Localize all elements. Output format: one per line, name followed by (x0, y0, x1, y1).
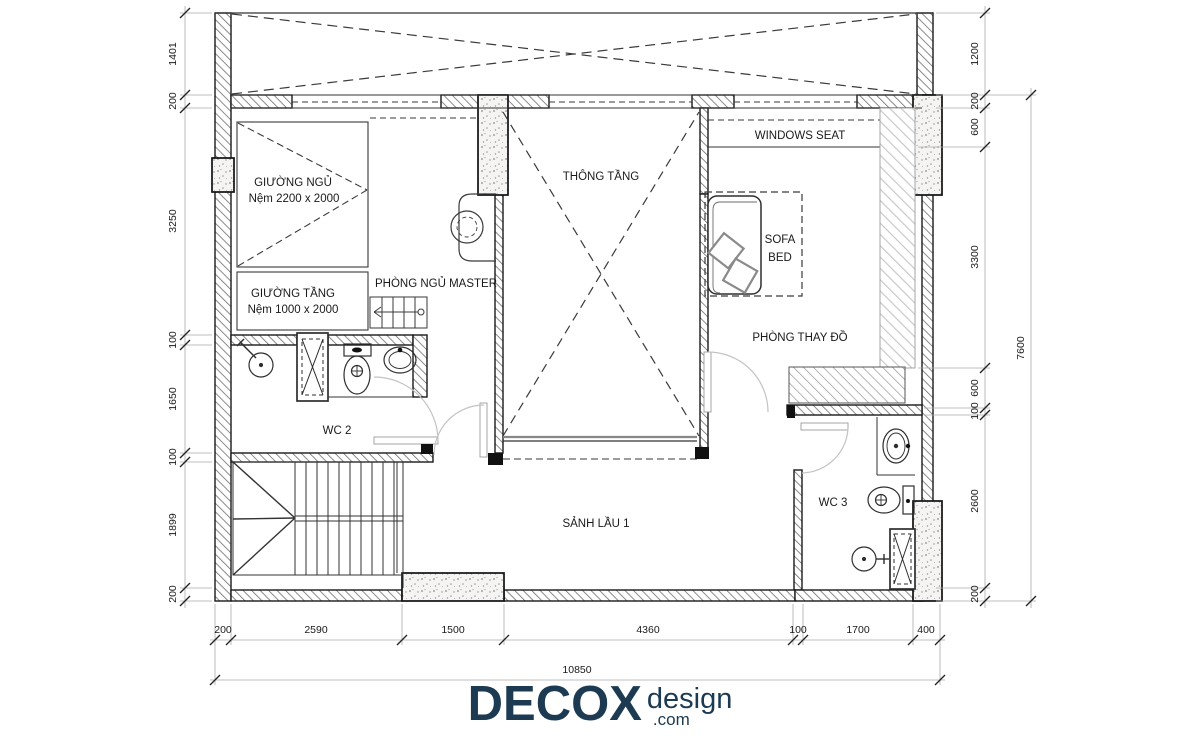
dimension-bottom: 200 2590 1500 4360 100 1700 400 10850 (210, 604, 945, 685)
master-bed-label: GIƯỜNG NGỦ (254, 176, 332, 189)
wc2-side-wall (413, 335, 427, 397)
wc2-door (374, 377, 438, 444)
dim-label: 1650 (167, 387, 179, 411)
windows-seat-label: WINDOWS SEAT (755, 130, 846, 142)
dim-label: 200 (167, 585, 179, 603)
dim-label: 3300 (969, 245, 981, 269)
dim-label: 100 (167, 448, 179, 466)
wc2-label: WC 2 (323, 425, 352, 437)
shower-stall (890, 529, 915, 589)
top-wall-segment (231, 95, 292, 108)
dressing-room-label: PHÒNG THAY ĐỒ (752, 331, 847, 344)
dim-label: 1899 (167, 513, 179, 537)
bunk-ladder (370, 297, 427, 328)
dim-label: 100 (167, 331, 179, 349)
concrete-column (212, 158, 234, 192)
dressing-bench-wall (787, 405, 922, 415)
dim-label: 200 (969, 92, 981, 110)
sofa-bed-label: BED (768, 252, 792, 264)
dim-ticks (980, 8, 1036, 606)
bunk-bed-size: Nệm 1000 x 2000 (248, 304, 339, 316)
wc2-stairs-wall (231, 453, 433, 462)
master-room-label: PHÒNG NGỦ MASTER (375, 277, 497, 290)
void-right-wall (700, 194, 708, 453)
dim-label: 400 (917, 624, 935, 636)
toilet-icon (868, 486, 914, 514)
dim-label: 200 (167, 92, 179, 110)
dim-total-label: 10850 (562, 664, 591, 676)
wc3-door (801, 423, 848, 473)
void-right-wall-upper (700, 108, 708, 194)
floor-plan-page: 1401 200 3250 100 1650 100 1899 200 1200… (0, 0, 1200, 750)
bottom-wall (504, 590, 795, 601)
chair-icon (451, 211, 483, 243)
wc3-fixtures (852, 429, 915, 589)
master-bed-size: Nệm 2200 x 2000 (249, 193, 340, 205)
wc3-left-wall (794, 470, 802, 590)
balcony-right-wall (917, 13, 933, 95)
bunk-bed (237, 272, 368, 330)
dim-label: 4360 (636, 624, 660, 636)
duct-shaft (297, 333, 328, 401)
dim-total-label: 7600 (1015, 336, 1027, 360)
wall-caps (421, 405, 795, 465)
concrete-block (402, 573, 504, 601)
sink-icon (883, 429, 910, 463)
void-label: THÔNG TẦNG (563, 170, 640, 183)
concrete-block (913, 501, 942, 601)
top-wall-segment (692, 95, 734, 108)
master-door (434, 403, 487, 457)
dimension-left: 1401 200 3250 100 1650 100 1899 200 (167, 6, 212, 608)
logo-design-text: design (647, 686, 732, 712)
bottom-wall (231, 590, 402, 601)
concrete-column (478, 95, 508, 195)
bunk-bed-label: GIƯỜNG TẦNG (251, 287, 335, 300)
logo-com-text: .com (653, 712, 690, 728)
bottom-wall (795, 590, 922, 601)
top-wall-segment (857, 95, 915, 108)
dim-label: 100 (789, 624, 807, 636)
decox-logo: DECOX design .com (468, 684, 733, 728)
dim-label: 600 (969, 379, 981, 397)
floor-plan-drawing: 1401 200 3250 100 1650 100 1899 200 1200… (0, 0, 1200, 750)
shower-icon (852, 547, 889, 571)
sink-icon (384, 347, 416, 373)
dressing-door (704, 352, 768, 412)
dim-label: 1500 (441, 624, 465, 636)
wc3-label: WC 3 (819, 497, 848, 509)
hall-label: SẢNH LẦU 1 (562, 517, 629, 530)
staircase (233, 462, 403, 588)
sofa-bed-label: SOFA (765, 234, 796, 246)
concrete-column (913, 95, 942, 195)
dim-label: 600 (969, 118, 981, 136)
dim-label: 2600 (969, 489, 981, 513)
dim-label: 100 (969, 402, 981, 420)
right-outer-wall (922, 194, 933, 504)
dim-label: 2590 (304, 624, 328, 636)
dressing-bench (789, 367, 905, 403)
dim-label: 1700 (846, 624, 870, 636)
logo-brand-text: DECOX (468, 684, 642, 724)
void-left-wall (495, 194, 503, 453)
wardrobe (880, 108, 915, 368)
left-outer-wall (215, 13, 231, 601)
dim-label: 3250 (167, 209, 179, 233)
doors (374, 352, 848, 473)
dim-label: 200 (969, 585, 981, 603)
toilet-icon (344, 344, 371, 394)
dim-label: 1200 (969, 42, 981, 66)
desk-and-chair (451, 194, 496, 261)
dim-label: 200 (214, 624, 232, 636)
dim-label: 1401 (167, 42, 179, 66)
